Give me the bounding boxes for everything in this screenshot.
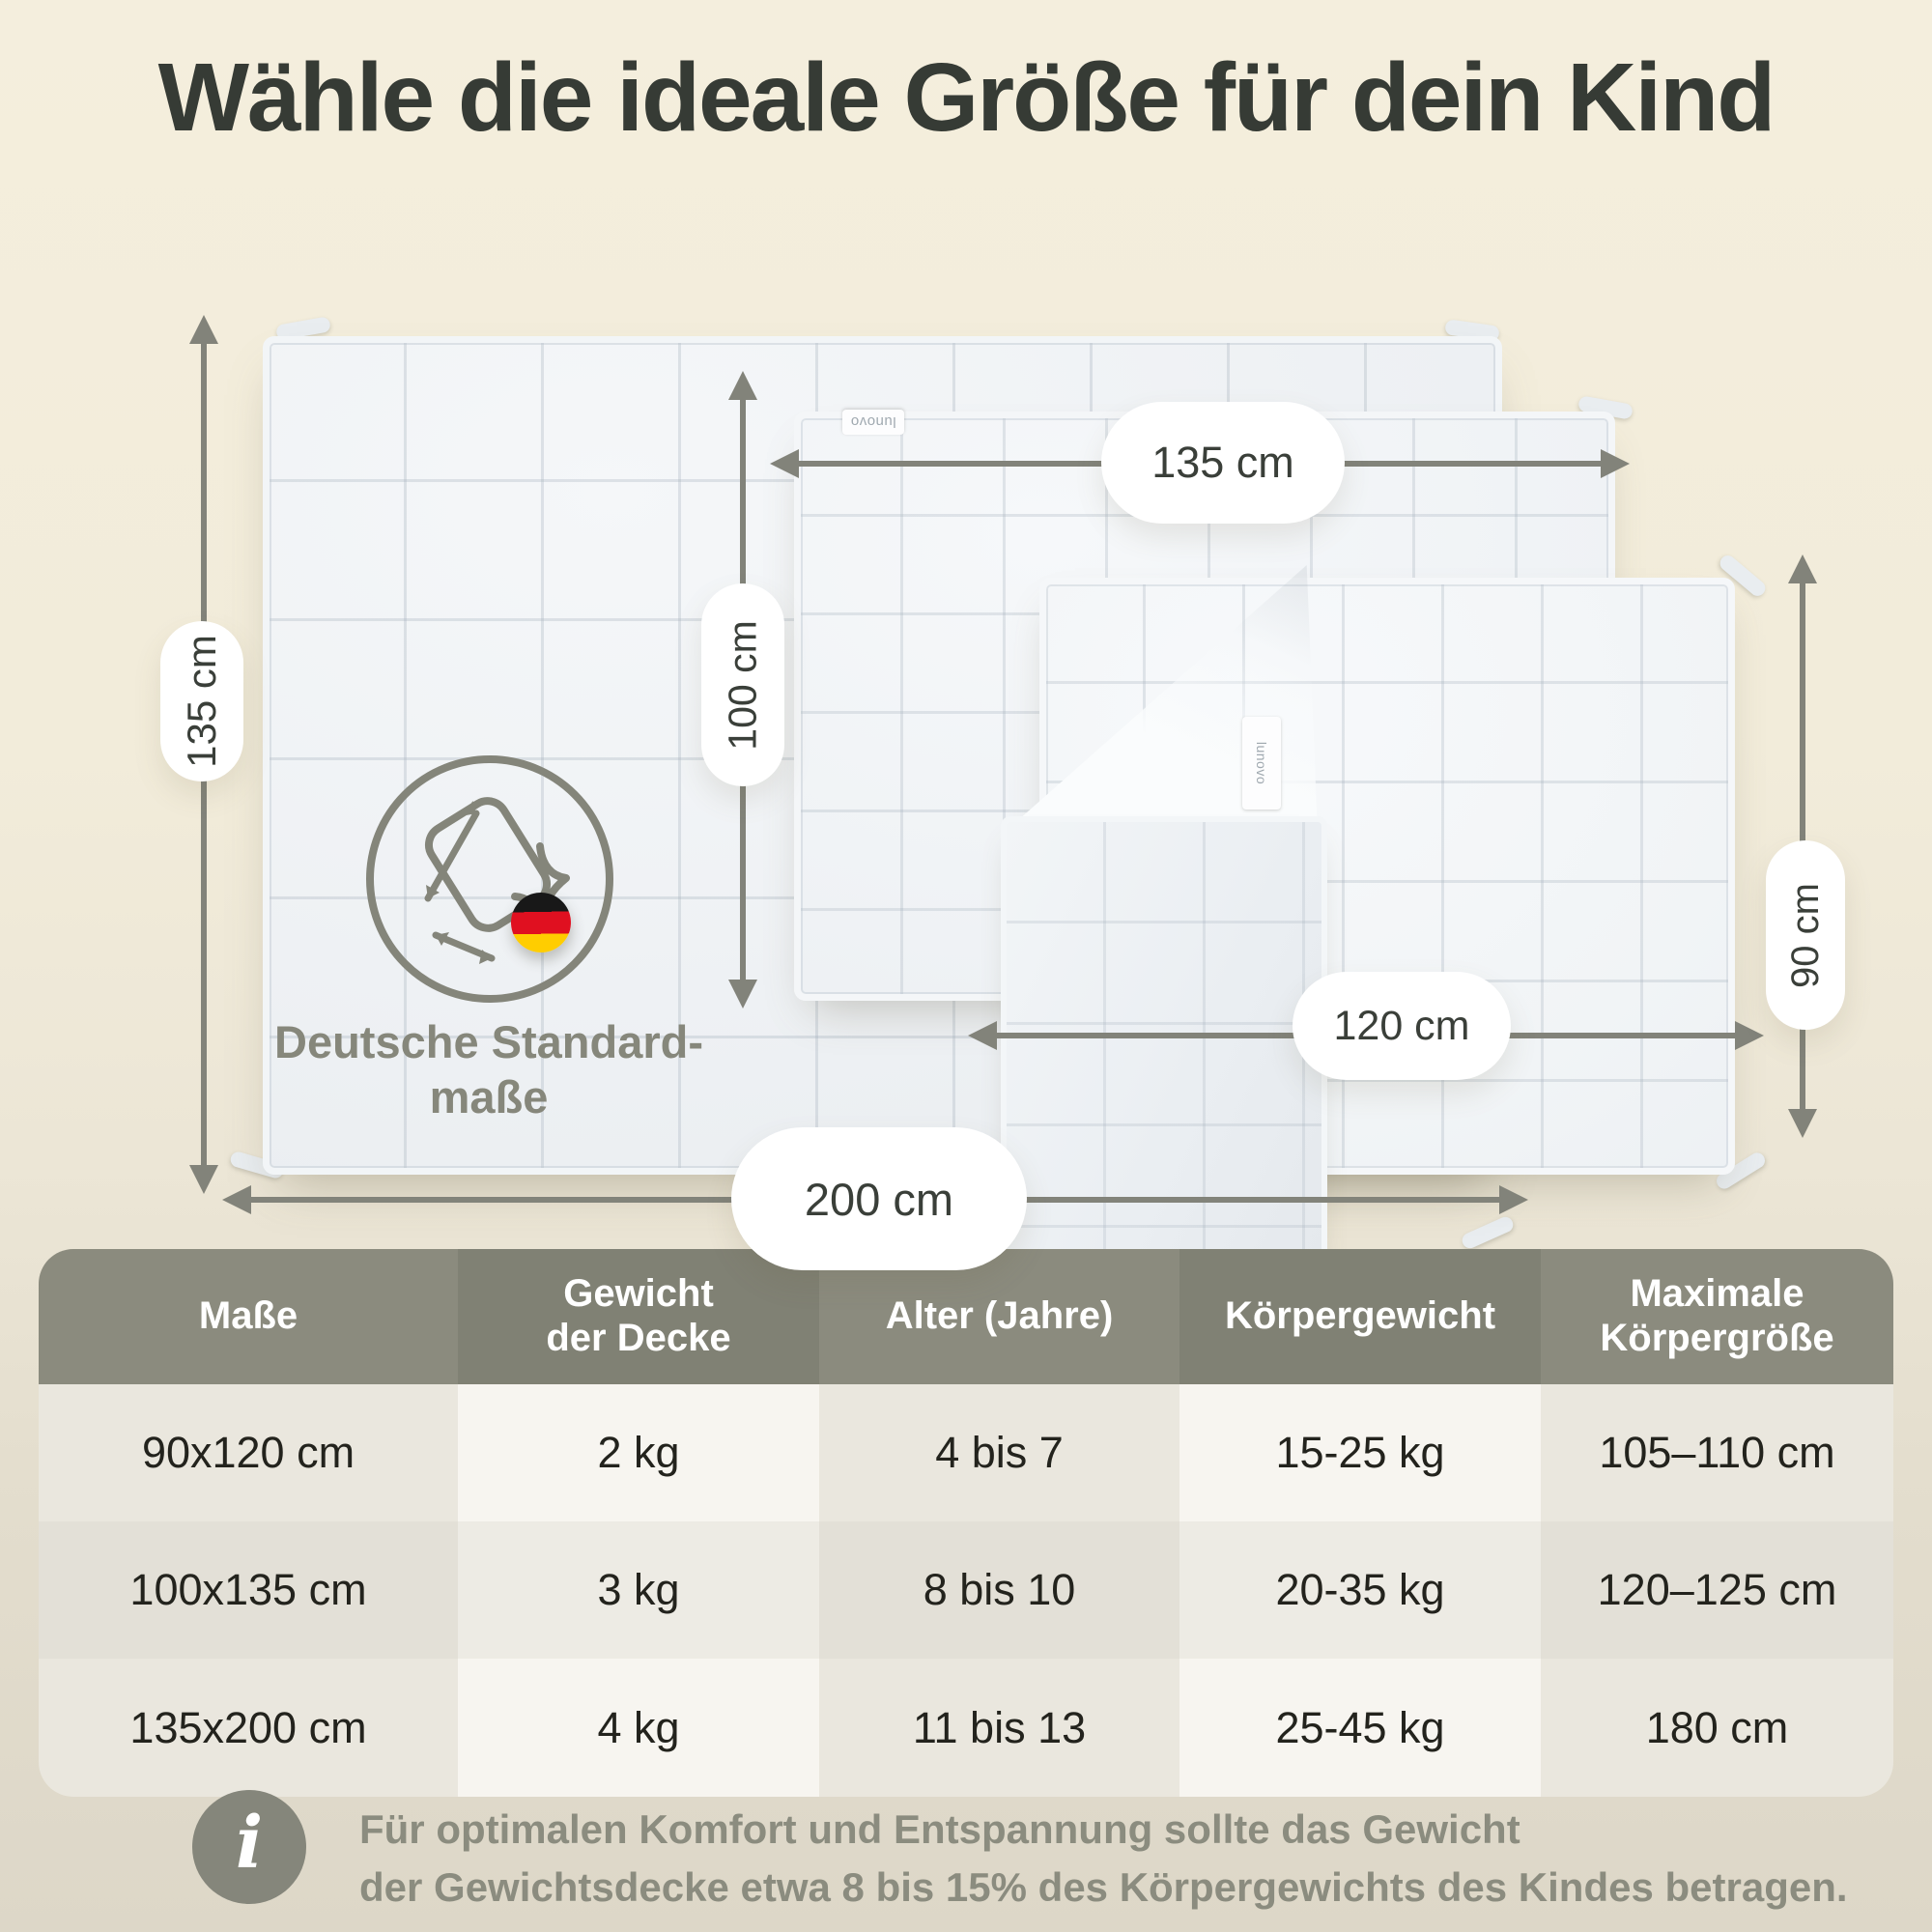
dimension-label-medium-height: 100 cm <box>701 583 784 786</box>
table-cell: 20-35 kg <box>1179 1521 1541 1659</box>
badge-caption: Deutsche Standard- maße <box>274 1014 703 1124</box>
footer-note: Für optimalen Komfort und Entspannung so… <box>359 1801 1848 1917</box>
table-cell: 2 kg <box>458 1384 819 1521</box>
corner-tab-large-bottom-right <box>1460 1214 1516 1250</box>
table-cell: 90x120 cm <box>39 1384 458 1521</box>
table-cell: 4 kg <box>458 1659 819 1797</box>
table-cell: 8 bis 10 <box>819 1521 1179 1659</box>
german-standard-size-badge <box>364 746 619 1009</box>
table-cell: 105–110 cm <box>1541 1384 1893 1521</box>
dimension-label-large-width: 200 cm <box>731 1127 1027 1270</box>
table-cell: 100x135 cm <box>39 1521 458 1659</box>
table-cell: 25-45 kg <box>1179 1659 1541 1797</box>
footer-note-line1: Für optimalen Komfort und Entspannung so… <box>359 1801 1848 1859</box>
badge-caption-line2: maße <box>274 1069 703 1124</box>
footer-note-line2: der Gewichtsdecke etwa 8 bis 15% des Kör… <box>359 1859 1848 1917</box>
blanket-small-folded-flap <box>1001 816 1327 1261</box>
table-cell: 120–125 cm <box>1541 1521 1893 1659</box>
table-header-koerpergewicht: Körpergewicht <box>1179 1249 1541 1384</box>
dimension-label-medium-width: 135 cm <box>1101 402 1345 524</box>
table-cell: 4 bis 7 <box>819 1384 1179 1521</box>
table-header-maximale-koerpergroesse: MaximaleKörpergröße <box>1541 1249 1893 1384</box>
dimension-label-small-width: 120 cm <box>1293 972 1511 1080</box>
brand-tag-small: lunovo <box>1242 717 1281 810</box>
brand-tag-medium: lunovo <box>842 410 904 435</box>
dimension-label-large-height: 135 cm <box>160 621 243 781</box>
table-header-gewicht-der-decke: Gewichtder Decke <box>458 1249 819 1384</box>
badge-circle-outline <box>370 759 610 999</box>
table-cell: 15-25 kg <box>1179 1384 1541 1521</box>
dimension-label-small-height: 90 cm <box>1766 840 1845 1030</box>
table-cell: 11 bis 13 <box>819 1659 1179 1797</box>
blanket-size-diagram: Deutsche Standard- maße lunovo lunovo 13… <box>0 0 1932 1285</box>
table-cell: 3 kg <box>458 1521 819 1659</box>
info-icon: i <box>192 1790 306 1904</box>
table-cell: 135x200 cm <box>39 1659 458 1797</box>
table-header-masse: Maße <box>39 1249 458 1384</box>
badge-caption-line1: Deutsche Standard- <box>274 1014 703 1069</box>
info-icon-glyph: i <box>236 1807 263 1879</box>
table-cell: 180 cm <box>1541 1659 1893 1797</box>
size-table: Maße Gewichtder Decke Alter (Jahre) Körp… <box>39 1249 1893 1797</box>
